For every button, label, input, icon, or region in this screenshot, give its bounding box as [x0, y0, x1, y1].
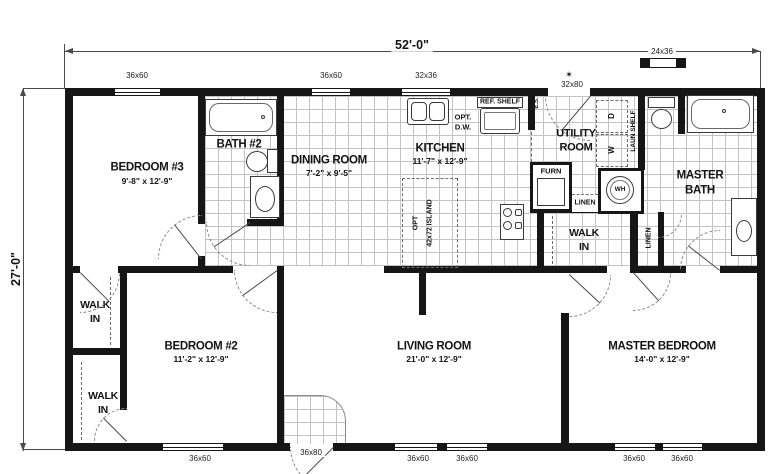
room-label-walkin-upper-2: IN — [90, 314, 100, 325]
linen-bath-label: LINEN — [646, 228, 653, 249]
door-swing-arc — [234, 270, 277, 313]
wall — [633, 266, 686, 273]
wall — [160, 88, 312, 96]
furnace-label: FURN — [541, 167, 562, 175]
wall — [537, 213, 544, 266]
room-size-kitchen: 11'-7" x 12'-9" — [412, 157, 467, 166]
range-burner — [515, 209, 522, 216]
left-dimension-extension-top — [23, 88, 65, 89]
sink — [736, 220, 752, 242]
toilet-tank — [267, 149, 278, 173]
arrow-up-icon — [20, 88, 26, 96]
utility-hall-dashed-line — [531, 132, 532, 162]
range-burner — [503, 208, 512, 217]
wall — [350, 88, 402, 96]
arrow-down-icon — [20, 443, 26, 451]
left-dimension-line — [23, 88, 24, 451]
wall — [73, 266, 80, 273]
wall — [561, 313, 569, 443]
room-label-master-bath-2: BATH — [685, 185, 715, 197]
room-size-living: 21'-0" x 12'-9" — [406, 355, 462, 364]
vanity — [648, 97, 675, 108]
wall — [247, 219, 281, 226]
room-label-master-walkin-1: WALK — [569, 228, 599, 239]
overall-height-dimension: 27'-0" — [10, 248, 23, 290]
wall — [702, 443, 765, 451]
window-size-label: 36x60 — [623, 455, 645, 463]
opt-dw-label-2: D.W. — [455, 123, 471, 131]
washer-label: W — [608, 146, 616, 154]
wall — [333, 443, 395, 451]
window-size-label: 24x36 — [648, 48, 676, 56]
dryer-label: D — [608, 113, 616, 119]
window-size-label: 36x60 — [671, 455, 693, 463]
sink — [255, 186, 275, 212]
end-window-jamb — [640, 58, 650, 68]
door-size-label: 36x80 — [297, 449, 325, 457]
window-glyph — [402, 88, 450, 96]
room-label-bedroom2: BEDROOM #2 — [164, 341, 237, 353]
wall — [720, 266, 757, 273]
kitchen-sink-basin-left — [411, 102, 427, 121]
entry-shelf-label: E.S. — [534, 97, 540, 108]
toilet-bowl — [651, 109, 672, 129]
refrigerator-inner — [484, 112, 516, 130]
room-label-bedroom3: BEDROOM #3 — [110, 162, 183, 174]
wall — [638, 96, 645, 170]
island-label-opt: OPT — [413, 216, 420, 230]
wall — [120, 355, 127, 410]
window-size-label: 36x60 — [189, 455, 211, 463]
ref-shelf-label: REF. SHELF — [480, 99, 520, 106]
window-size-label: 36x60 — [320, 72, 342, 80]
range-burner — [503, 221, 512, 230]
wall — [630, 206, 638, 273]
wall — [487, 443, 615, 451]
kitchen-sink-basin-right — [429, 102, 445, 121]
wall — [73, 348, 127, 355]
wall — [450, 88, 548, 96]
wall — [678, 96, 685, 134]
arrow-right-icon — [752, 48, 760, 54]
room-label-master-bedroom: MASTER BEDROOM — [608, 341, 716, 353]
floor-plan: 52'-0" 27'-0" — [0, 0, 768, 474]
wall — [198, 96, 205, 224]
entry-star-icon: ✶ — [565, 71, 573, 80]
toilet-bowl — [246, 151, 268, 172]
bathtub-basin — [691, 99, 750, 129]
wall — [757, 88, 765, 451]
room-label-dining: DINING ROOM — [291, 155, 367, 167]
opt-dw-label-1: OPT. — [455, 113, 472, 121]
furnace-unit — [537, 178, 565, 206]
left-dimension-extension-bottom — [23, 449, 65, 450]
closet-rod-line — [81, 362, 82, 440]
room-label-master-walkin-2: IN — [579, 242, 589, 253]
end-window-glyph — [640, 58, 686, 68]
room-label-kitchen: KITCHEN — [415, 143, 464, 155]
window-glyph — [312, 88, 350, 96]
room-label-bath2: BATH #2 — [217, 139, 262, 151]
wall — [655, 443, 663, 451]
window-glyph — [395, 443, 437, 451]
window-size-label: 36x60 — [456, 455, 478, 463]
window-glyph — [615, 443, 655, 451]
room-label-living: LIVING ROOM — [397, 341, 471, 353]
island-label-size: 42x72 ISLAND — [427, 199, 434, 246]
end-window-jamb — [676, 58, 686, 68]
closet-rod-line — [552, 216, 553, 264]
arrow-left-icon — [65, 48, 73, 54]
laundry-shelf-label: LAUN SHELF — [631, 110, 638, 151]
linen-hall-label: LINEN — [575, 200, 596, 207]
top-dimension-extension-right — [760, 51, 761, 88]
window-glyph — [163, 443, 223, 451]
room-label-utility-2: ROOM — [559, 143, 592, 154]
wall — [277, 266, 284, 451]
tile-floor-entry — [284, 395, 346, 444]
range-burner — [515, 222, 522, 229]
window-glyph — [447, 443, 487, 451]
overall-width-dimension: 52'-0" — [391, 39, 433, 52]
wall — [419, 273, 426, 315]
window-glyph — [115, 88, 160, 96]
room-size-bedroom2: 11'-2" x 12'-9" — [173, 355, 228, 364]
bathtub-drain — [722, 109, 726, 113]
wall — [65, 443, 163, 451]
door-size-label: 32x80 — [558, 81, 586, 89]
wall — [437, 443, 447, 451]
room-label-master-bath-1: MASTER — [677, 170, 724, 182]
room-size-dining: 7'-2" x 9'-5" — [306, 169, 352, 178]
window-size-label: 36x60 — [407, 455, 429, 463]
water-heater-label: WH — [615, 187, 626, 194]
wall — [120, 273, 127, 350]
window-size-label: 36x60 — [126, 72, 148, 80]
room-size-bedroom3: 9'-8" x 12'-9" — [122, 177, 173, 186]
window-glyph — [663, 443, 702, 451]
wall — [65, 88, 73, 451]
room-label-utility-1: UTILITY — [556, 129, 595, 140]
bathtub-drain — [261, 115, 265, 119]
room-label-walkin-lower-1: WALK — [88, 391, 118, 402]
room-size-master-bedroom: 14'-0" x 12'-9" — [634, 355, 690, 364]
window-size-label: 32x36 — [415, 72, 437, 80]
wall — [118, 266, 233, 273]
